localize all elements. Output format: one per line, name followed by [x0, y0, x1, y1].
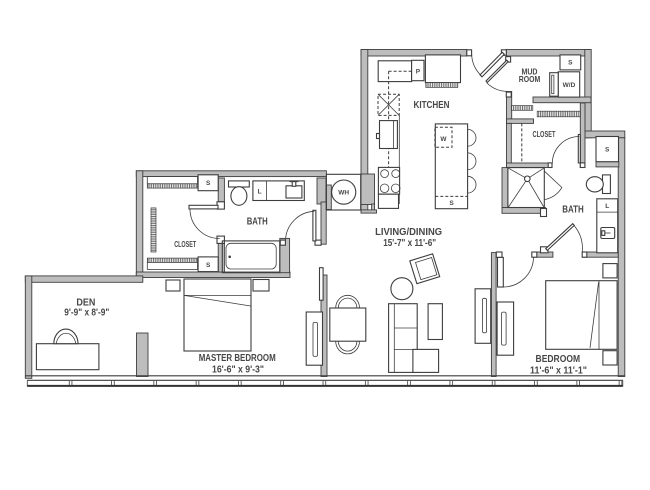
svg-text:LIVING/DINING: LIVING/DINING	[375, 226, 442, 238]
svg-text:WH: WH	[338, 190, 349, 197]
svg-text:CLOSET: CLOSET	[533, 129, 557, 139]
svg-text:BATH: BATH	[562, 204, 584, 216]
svg-text:11'-6" x 11'-1": 11'-6" x 11'-1"	[530, 365, 587, 376]
svg-text:ROOM: ROOM	[519, 74, 541, 84]
svg-text:DEN: DEN	[76, 296, 95, 308]
svg-text:S: S	[206, 180, 211, 187]
svg-text:W: W	[440, 136, 447, 143]
svg-text:S: S	[449, 200, 454, 207]
svg-text:S: S	[605, 147, 610, 154]
svg-text:16'-6" x 9'-3": 16'-6" x 9'-3"	[212, 365, 264, 376]
svg-text:S: S	[206, 262, 211, 269]
svg-text:9'-9" x 8'-9": 9'-9" x 8'-9"	[64, 308, 109, 319]
svg-text:CLOSET: CLOSET	[174, 239, 197, 249]
svg-text:15'-7" x 11'-6": 15'-7" x 11'-6"	[383, 238, 436, 249]
svg-text:MASTER BEDROOM: MASTER BEDROOM	[199, 352, 276, 364]
svg-text:BEDROOM: BEDROOM	[536, 353, 581, 365]
svg-text:S: S	[568, 60, 573, 67]
svg-text:BATH: BATH	[247, 216, 268, 228]
svg-text:P: P	[416, 69, 421, 76]
svg-text:W/D: W/D	[563, 82, 576, 89]
svg-text:L: L	[605, 203, 609, 210]
svg-text:L: L	[258, 189, 262, 196]
svg-text:KITCHEN: KITCHEN	[414, 99, 450, 111]
